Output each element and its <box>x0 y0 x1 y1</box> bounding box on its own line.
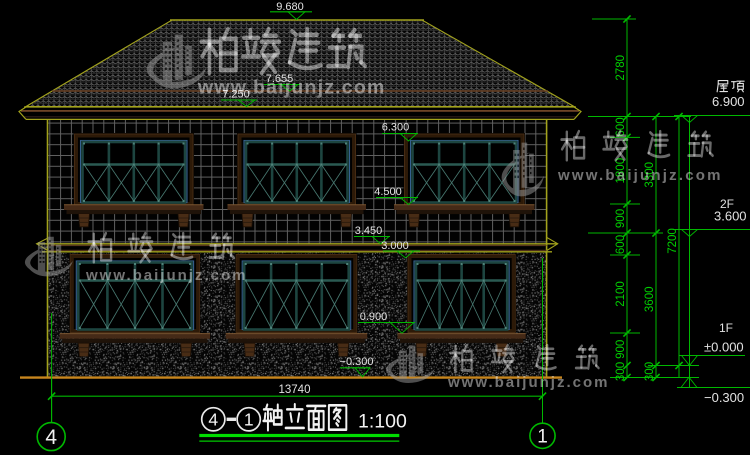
svg-text:900: 900 <box>615 209 627 228</box>
svg-text:4: 4 <box>208 410 218 430</box>
svg-text:−0.300: −0.300 <box>340 356 374 368</box>
svg-text:600: 600 <box>615 117 627 136</box>
svg-text:6.900: 6.900 <box>712 94 745 109</box>
svg-text:2780: 2780 <box>615 55 627 81</box>
svg-text:9.680: 9.680 <box>276 1 304 13</box>
svg-text:www.baijunjz.com: www.baijunjz.com <box>557 167 723 184</box>
svg-text:1: 1 <box>537 427 548 448</box>
svg-text:www.baijunjz.com: www.baijunjz.com <box>197 77 386 99</box>
svg-text:300: 300 <box>615 362 627 381</box>
svg-text:www.baijunjz.com: www.baijunjz.com <box>447 374 609 391</box>
svg-text:1:100: 1:100 <box>358 411 407 433</box>
svg-text:−0.300: −0.300 <box>704 390 744 405</box>
svg-text:2100: 2100 <box>615 281 627 307</box>
svg-text:7200: 7200 <box>667 228 679 254</box>
svg-text:4.500: 4.500 <box>374 186 402 198</box>
svg-text:600: 600 <box>615 235 627 254</box>
svg-text:0.900: 0.900 <box>360 311 388 323</box>
svg-text:3600: 3600 <box>644 287 656 313</box>
svg-text:3.600: 3.600 <box>714 209 747 224</box>
svg-text:1F: 1F <box>719 321 733 335</box>
svg-text:±0.000: ±0.000 <box>704 340 744 355</box>
svg-text:6.300: 6.300 <box>382 122 410 134</box>
svg-text:300: 300 <box>644 362 656 381</box>
svg-text:1: 1 <box>244 410 254 430</box>
svg-text:3.450: 3.450 <box>355 225 383 237</box>
svg-text:www.baijunjz.com: www.baijunjz.com <box>85 267 247 284</box>
svg-text:3.000: 3.000 <box>381 240 409 252</box>
svg-text:13740: 13740 <box>279 384 311 396</box>
svg-text:900: 900 <box>615 340 627 359</box>
svg-text:4: 4 <box>45 426 57 449</box>
